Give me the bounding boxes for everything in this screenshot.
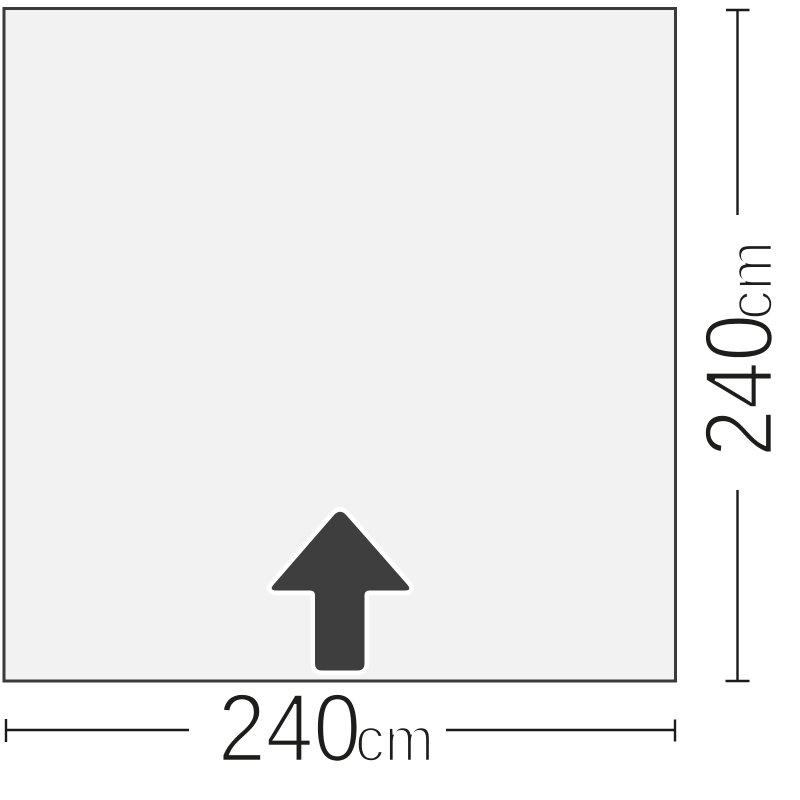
svg-text:240: 240: [686, 314, 793, 457]
svg-text:cm: cm: [716, 241, 786, 320]
svg-text:240: 240: [218, 675, 361, 782]
svg-text:cm: cm: [355, 705, 434, 775]
